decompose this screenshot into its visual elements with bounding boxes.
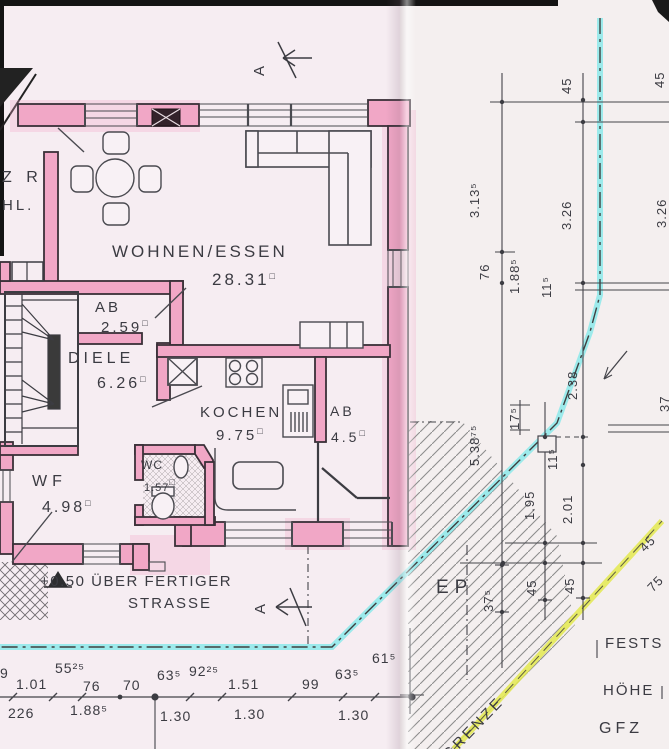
room-label-partial-bottom: HL. [2, 198, 34, 213]
room-label-partial-top: Z R [2, 170, 43, 186]
ep-label: EP [436, 578, 473, 597]
dim-label: 1.95 [523, 491, 536, 520]
level-note-line1: +0.50 ÜBER FERTIGER [40, 574, 232, 589]
dim-label: 3.13⁵ [468, 182, 481, 218]
thin-walls [318, 442, 390, 522]
dim-label: 37⁵ [482, 589, 495, 612]
room-area-wf: 4.98□ [42, 499, 91, 516]
sqm-symbol: □ [169, 477, 174, 487]
section-letter-bottom: A [253, 602, 268, 614]
dim-label: 63⁵ [157, 668, 181, 682]
edge-text-fests: FESTS [605, 636, 663, 651]
dim-label: 2.01 [561, 495, 574, 524]
dim-label: 9 [0, 666, 9, 680]
dim-label: 11⁵ [546, 448, 559, 470]
room-area-diele: 6.26□ [97, 375, 146, 392]
edge-text-hoehe: HÖHE [603, 683, 654, 698]
sqm-symbol: □ [85, 498, 90, 508]
crosshatch-area [0, 562, 48, 620]
dim-label: 1.30 [234, 707, 265, 721]
room-label-ab1: AB [95, 300, 121, 315]
room-label-wc: WC [141, 459, 163, 471]
section-arrow-bottom [276, 588, 312, 626]
page-fold-shadow [386, 0, 416, 749]
dim-label: 11⁵ [540, 276, 553, 298]
dim-label: 92²⁵ [189, 664, 219, 678]
room-label-wf: WF [32, 474, 67, 490]
room-area-wc: 1.57□ [144, 478, 175, 494]
sqm-symbol: □ [359, 428, 364, 438]
room-label-wohnen-essen: WOHNEN/ESSEN [112, 243, 288, 260]
dim-label: 3.26 [655, 199, 668, 228]
dim-label: 55²⁵ [55, 661, 85, 675]
dim-label: 1.88⁵ [70, 703, 108, 717]
edge-text-gfz: GFZ [599, 721, 643, 737]
dim-label: 45 [525, 580, 538, 596]
dim-label: 45 [653, 72, 666, 88]
dim-label: 63⁵ [335, 667, 359, 681]
level-note-line2: STRASSE [128, 596, 212, 611]
section-arrow-top [278, 42, 312, 78]
chimney-duct [152, 109, 180, 126]
sofa [246, 131, 371, 245]
sqm-symbol: □ [140, 374, 145, 384]
dim-label: 76 [83, 679, 101, 693]
dim-label: 226 [8, 706, 34, 720]
dim-label: 45 [560, 78, 573, 94]
dim-label: 45 [563, 578, 576, 594]
dim-label: 76 [478, 264, 491, 280]
sqm-symbol: □ [257, 426, 262, 436]
dim-label: 99 [302, 677, 320, 691]
dim-label: 1.51 [228, 677, 259, 691]
dim-label: 2.38 [566, 371, 579, 400]
room-area-ab1: 2.59□ [101, 319, 148, 335]
room-area-wohnen-essen: 28.31□ [212, 271, 275, 288]
sqm-symbol: □ [270, 271, 275, 281]
dim-label: 1.30 [160, 709, 191, 723]
scanned-floor-plan: WOHNEN/ESSEN 28.31□ AB 2.59□ DIELE 6.26□… [0, 0, 669, 749]
dim-label: 37 [658, 396, 669, 412]
section-letter-top: A [252, 64, 267, 76]
room-area-kochen: 9.75□ [216, 427, 263, 443]
dim-label: 3.26 [560, 201, 573, 230]
room-label-kochen: KOCHEN [200, 405, 282, 420]
dim-label: 1.88⁵ [508, 258, 521, 294]
dim-label: 1.01 [16, 677, 47, 691]
dim-label: 17⁵ [508, 407, 521, 430]
room-label-diele: DIELE [68, 351, 134, 367]
dim-label: 70 [123, 678, 141, 692]
room-label-ab2: AB [330, 404, 355, 418]
room-area-ab2: 4.5□ [331, 429, 365, 444]
dim-label: 5.38⁷⁵ [468, 425, 481, 466]
dining-table [71, 132, 161, 225]
sqm-symbol: □ [142, 318, 147, 328]
sideboard [300, 322, 363, 348]
dim-label: 1.30 [338, 708, 369, 722]
dim-label: 61⁵ [372, 651, 396, 665]
